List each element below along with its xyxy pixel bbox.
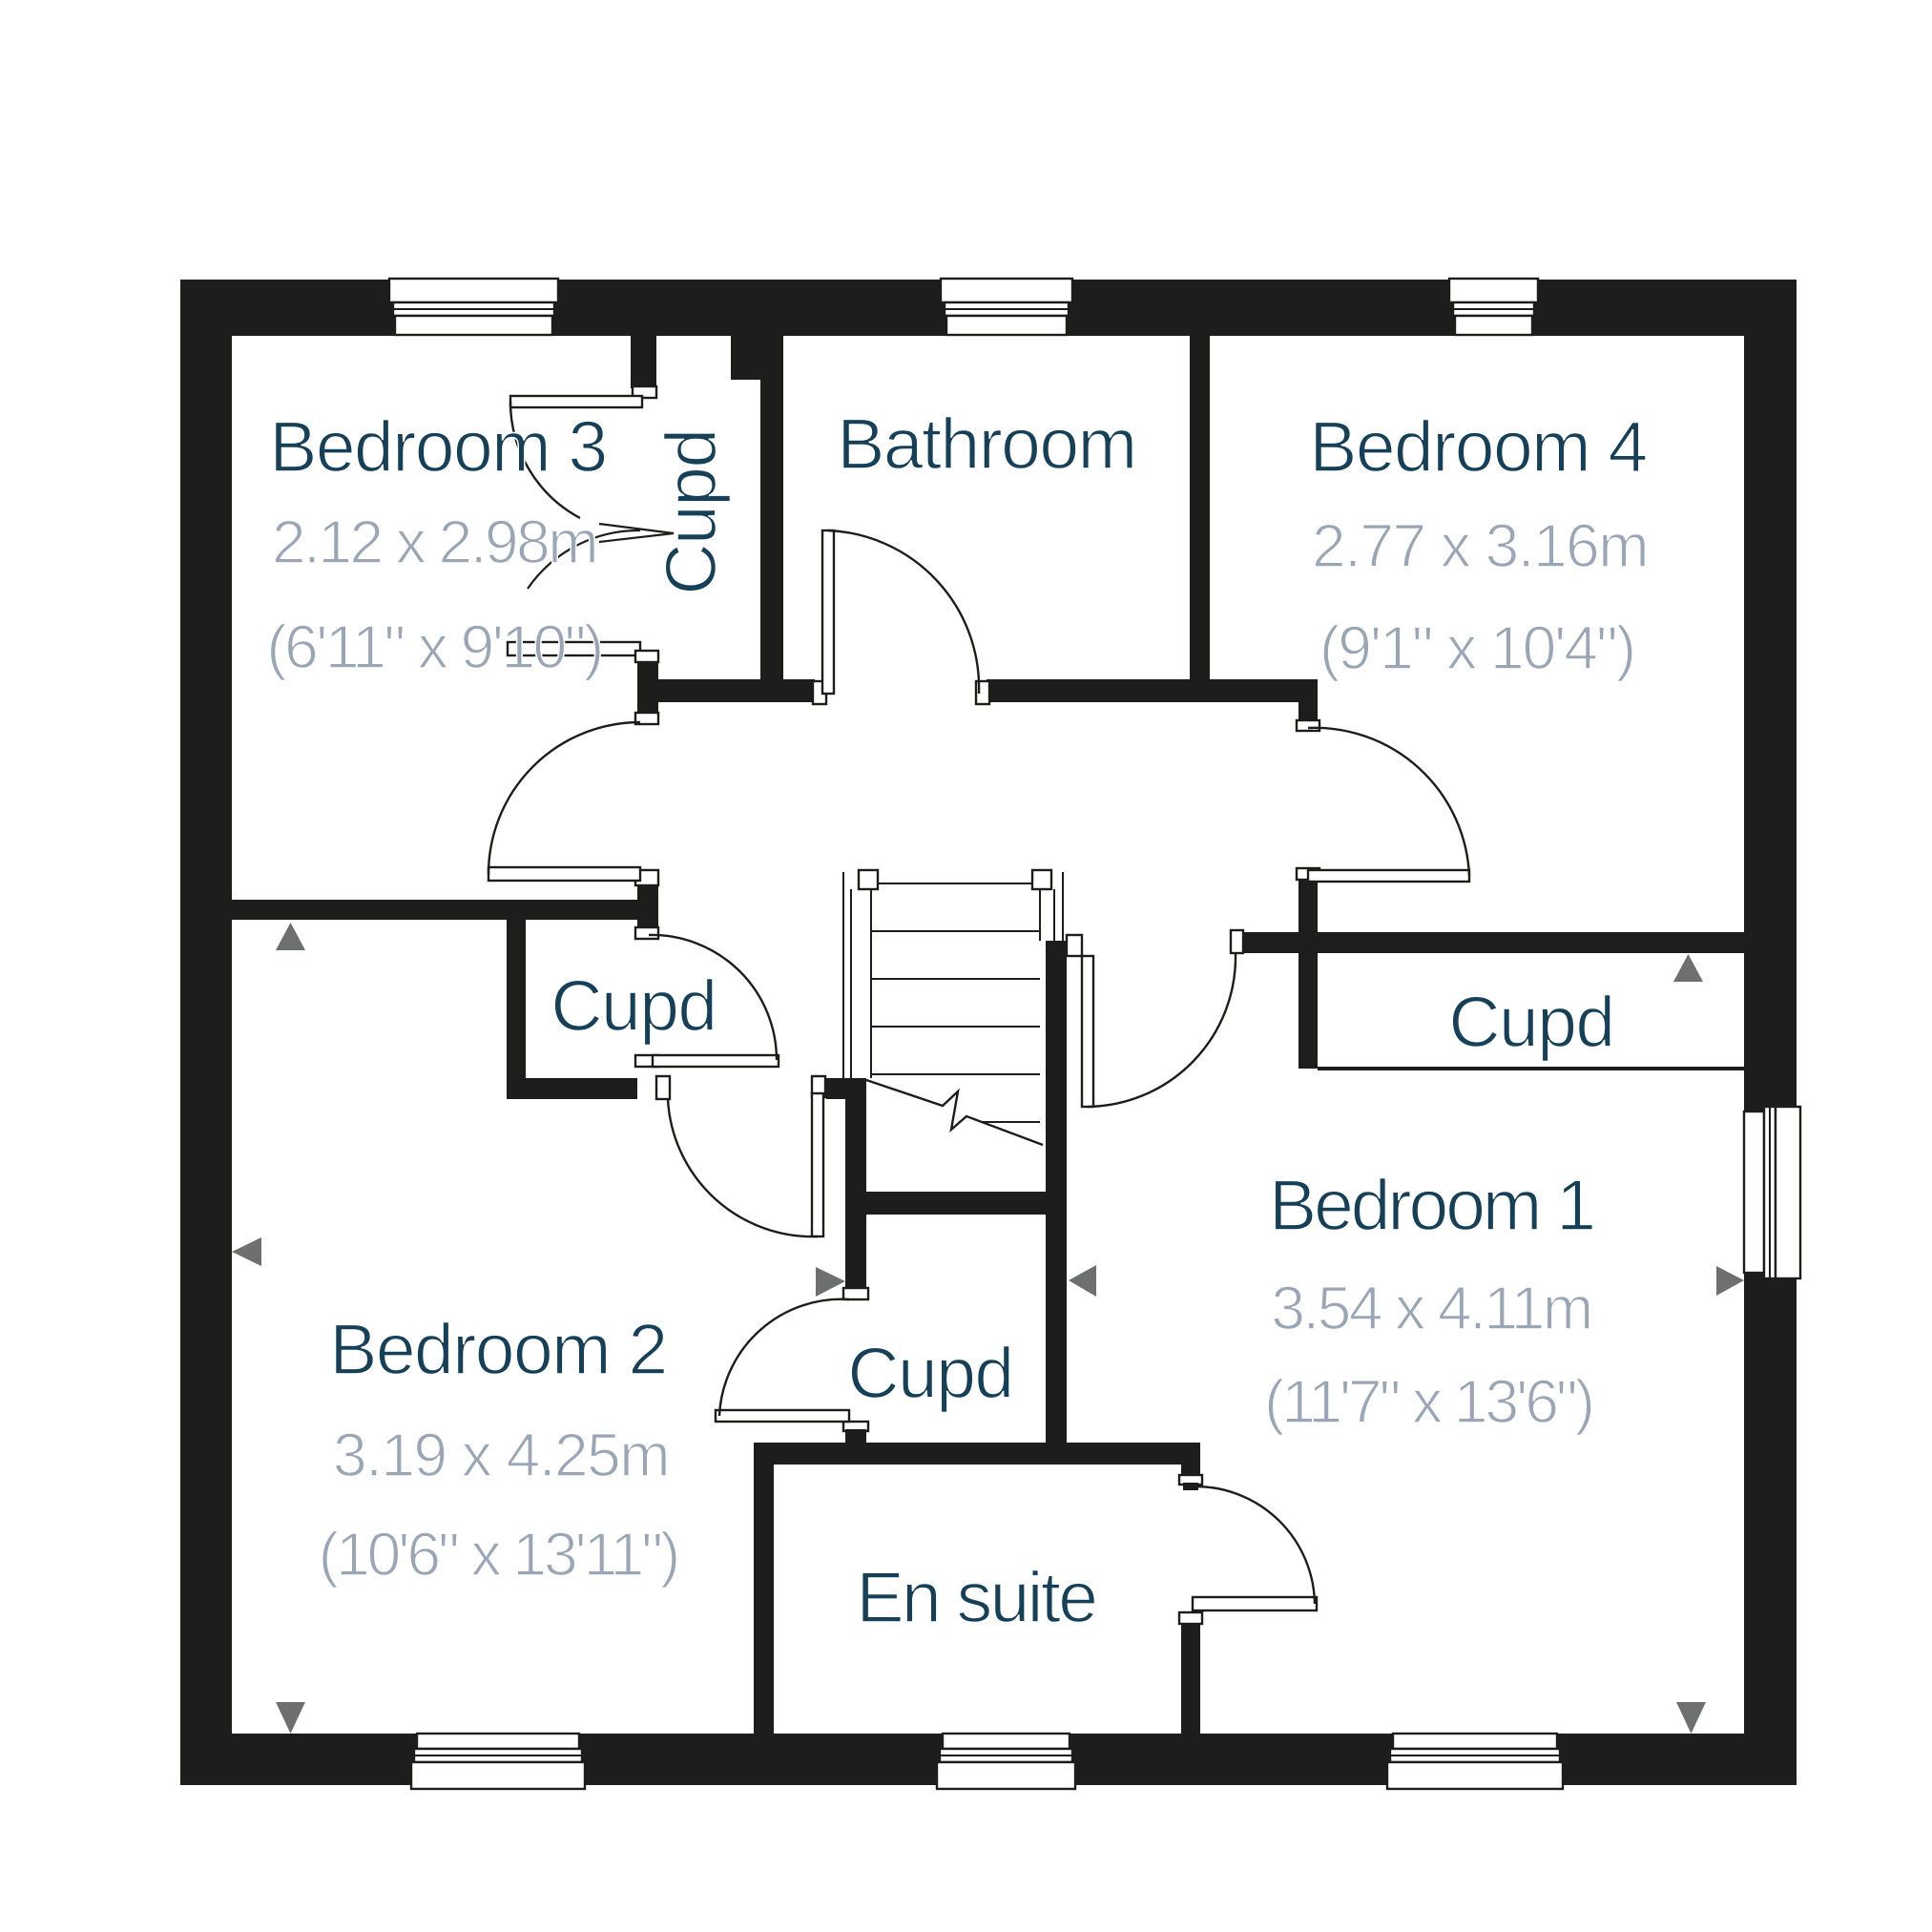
- svg-text:Bathroom: Bathroom: [837, 404, 1135, 484]
- svg-text:(11'7" x 13'6"): (11'7" x 13'6"): [1264, 1367, 1592, 1436]
- svg-text:Bedroom 2: Bedroom 2: [329, 1309, 666, 1389]
- svg-text:Bedroom 1: Bedroom 1: [1269, 1165, 1593, 1245]
- svg-text:Bedroom 4: Bedroom 4: [1309, 406, 1646, 487]
- svg-text:Cupd: Cupd: [1448, 982, 1613, 1062]
- svg-text:En suite: En suite: [857, 1557, 1096, 1637]
- svg-text:3.54 x 4.11m: 3.54 x 4.11m: [1271, 1274, 1590, 1342]
- svg-text:Cupd: Cupd: [847, 1333, 1012, 1413]
- svg-text:Cupd: Cupd: [651, 429, 731, 594]
- svg-text:Cupd: Cupd: [551, 966, 716, 1046]
- svg-text:Bedroom 3: Bedroom 3: [269, 406, 606, 487]
- svg-text:(6'11" x 9'10"): (6'11" x 9'10"): [266, 613, 601, 681]
- svg-text:(10'6" x 13'11"): (10'6" x 13'11"): [319, 1520, 677, 1589]
- svg-text:2.12 x 2.98m: 2.12 x 2.98m: [272, 508, 596, 576]
- svg-text:2.77 x 3.16m: 2.77 x 3.16m: [1312, 511, 1648, 580]
- svg-text:3.19 x 4.25m: 3.19 x 4.25m: [333, 1421, 669, 1489]
- svg-text:(9'1" x 10'4"): (9'1" x 10'4"): [1319, 613, 1634, 682]
